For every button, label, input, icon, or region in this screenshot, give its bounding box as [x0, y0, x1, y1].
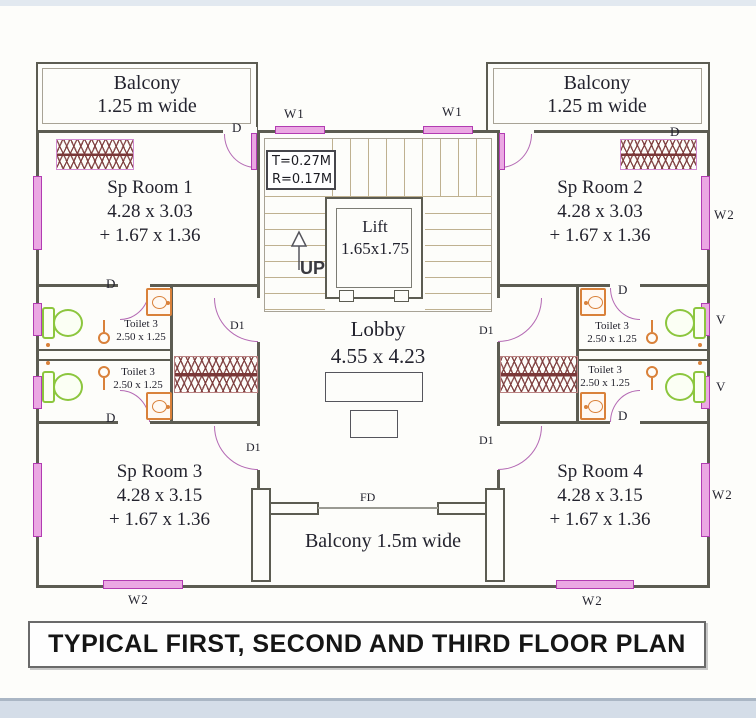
wall-segment — [576, 349, 710, 351]
lift-label: Lift 1.65x1.75 — [330, 216, 420, 260]
lift-door-notch — [394, 290, 409, 302]
door-opening — [500, 127, 534, 134]
shower-icon — [651, 378, 653, 390]
door-label-d1: D1 — [479, 323, 494, 338]
room-size: 4.28 x 3.03 — [60, 200, 240, 224]
balcony-bottom-label: Balcony 1.5m wide — [288, 530, 478, 553]
toilet-size: 2.50 x 1.25 — [108, 331, 174, 344]
wall-segment — [257, 470, 260, 490]
stair-treads — [425, 198, 491, 310]
toilet-wc-icon — [664, 306, 706, 340]
window-w2 — [701, 176, 710, 250]
window-label-w2: W2 — [128, 592, 149, 608]
toilet-label: Toilet 3 2.50 x 1.25 — [105, 366, 171, 392]
lobby-name: Lobby — [290, 316, 466, 343]
wall-segment — [640, 284, 710, 287]
room-size-extra: + 1.67 x 1.36 — [60, 224, 240, 248]
toilet-size: 2.50 x 1.25 — [105, 379, 171, 392]
floor-plan-page: T=0.27M R=0.17M UP Lift 1.65x1.75 — [0, 0, 756, 718]
window-w2 — [33, 176, 42, 250]
door-label-d1: D1 — [246, 440, 261, 455]
wall-segment — [576, 284, 579, 424]
wall-segment — [36, 359, 172, 361]
balcony-name: Balcony — [512, 72, 682, 95]
window-w1 — [423, 126, 473, 134]
room-label-sp-room-2: Sp Room 2 4.28 x 3.03 + 1.67 x 1.36 — [505, 176, 695, 248]
room-size: 4.28 x 3.15 — [62, 484, 257, 508]
toilet-name: Toilet 3 — [108, 318, 174, 331]
toilet-name: Toilet 3 — [105, 366, 171, 379]
balcony-name: Balcony — [62, 72, 232, 95]
door-label-d: D — [670, 124, 680, 140]
window-label-w2: W2 — [712, 487, 733, 503]
scan-edge-top — [0, 0, 756, 6]
wall-segment — [498, 284, 610, 287]
toilet-wc-icon — [42, 306, 84, 340]
lift-name: Lift — [330, 216, 420, 238]
wash-basin-icon — [146, 392, 172, 420]
shower-icon — [103, 320, 105, 332]
tap-dot — [46, 343, 50, 347]
window-w2 — [103, 580, 183, 589]
toilet-label: Toilet 3 2.50 x 1.25 — [579, 320, 645, 346]
door-label-d: D — [106, 276, 116, 292]
wash-basin-icon — [146, 288, 172, 316]
wash-basin-icon — [580, 392, 606, 420]
door-label-d: D — [618, 282, 628, 298]
tap-dot — [46, 361, 50, 365]
toilet-wc-icon — [42, 370, 84, 404]
room-size-extra: + 1.67 x 1.36 — [62, 508, 257, 532]
wardrobe-hatch — [174, 356, 258, 393]
balcony-top-left-label: Balcony 1.25 m wide — [62, 72, 232, 118]
window-w2 — [33, 463, 42, 537]
door-leaf — [499, 133, 505, 170]
shower-icon — [646, 366, 658, 378]
room-size-extra: + 1.67 x 1.36 — [505, 224, 695, 248]
toilet-size: 2.50 x 1.25 — [579, 333, 645, 346]
toilet-name: Toilet 3 — [572, 364, 638, 377]
balcony-width: 1.25 m wide — [62, 95, 232, 118]
room-size: 4.28 x 3.03 — [505, 200, 695, 224]
room-label-sp-room-3: Sp Room 3 4.28 x 3.15 + 1.67 x 1.36 — [62, 460, 257, 532]
window-label-w2: W2 — [582, 593, 603, 609]
door-label-d1: D1 — [479, 433, 494, 448]
lobby-furniture — [325, 372, 423, 402]
wardrobe-hatch — [620, 139, 697, 170]
shower-icon — [646, 332, 658, 344]
wall-segment — [497, 470, 500, 490]
lobby-label: Lobby 4.55 x 4.23 — [290, 316, 466, 370]
tread-dimension: T=0.27M — [272, 153, 334, 171]
up-direction-label: UP — [300, 258, 325, 279]
toilet-label: Toilet 3 2.50 x 1.25 — [572, 364, 638, 390]
lobby-size: 4.55 x 4.23 — [290, 343, 466, 370]
vent-window — [33, 376, 42, 409]
tap-dot — [698, 343, 702, 347]
lobby-furniture — [350, 410, 398, 438]
scan-edge-bottom — [0, 701, 756, 718]
shower-icon — [651, 320, 653, 332]
balcony-pillar — [485, 488, 505, 582]
wall-segment — [498, 421, 610, 424]
wall-segment — [576, 359, 710, 361]
room-name: Sp Room 2 — [505, 176, 695, 200]
window-label-w1: W1 — [442, 104, 463, 120]
riser-dimension: R=0.17M — [272, 171, 334, 189]
vent-label-v: V — [716, 379, 726, 395]
window-w1 — [275, 126, 325, 134]
window-label-w1: W1 — [284, 106, 305, 122]
toilet-label: Toilet 3 2.50 x 1.25 — [108, 318, 174, 344]
room-label-sp-room-1: Sp Room 1 4.28 x 3.03 + 1.67 x 1.36 — [60, 176, 240, 248]
room-name: Sp Room 3 — [62, 460, 257, 484]
balcony-width: 1.25 m wide — [512, 95, 682, 118]
stair-treads — [332, 139, 492, 196]
balcony-wall-stub — [269, 502, 319, 515]
vent-window — [33, 303, 42, 336]
toilet-wc-icon — [664, 370, 706, 404]
vent-label-v: V — [716, 312, 726, 328]
balcony-wall-stub — [437, 502, 487, 515]
window-w2 — [701, 463, 710, 537]
toilet-name: Toilet 3 — [579, 320, 645, 333]
stair-dimension-note: T=0.27M R=0.17M — [266, 150, 336, 190]
window-label-w2: W2 — [714, 207, 735, 223]
door-label-d: D — [232, 120, 242, 136]
balcony-top-right-label: Balcony 1.25 m wide — [512, 72, 682, 118]
wall-segment — [150, 284, 260, 287]
plan-title: TYPICAL FIRST, SECOND AND THIRD FLOOR PL… — [28, 621, 706, 668]
wall-segment — [36, 349, 172, 351]
door-leaf — [251, 133, 257, 170]
door-label-d: D — [618, 408, 628, 424]
wardrobe-hatch — [500, 356, 578, 393]
window-w2 — [556, 580, 634, 589]
room-size-extra: + 1.67 x 1.36 — [505, 508, 695, 532]
door-label-d: D — [106, 410, 116, 426]
wall-segment — [257, 130, 260, 298]
tap-dot — [698, 361, 702, 365]
toilet-size: 2.50 x 1.25 — [572, 377, 638, 390]
wall-segment — [640, 421, 710, 424]
wall-segment — [150, 421, 260, 424]
wardrobe-hatch — [56, 139, 134, 170]
door-label-fd: FD — [360, 490, 375, 505]
room-name: Sp Room 4 — [505, 460, 695, 484]
room-name: Sp Room 1 — [60, 176, 240, 200]
folding-door-line — [318, 507, 438, 509]
wash-basin-icon — [580, 288, 606, 316]
door-label-d1: D1 — [230, 318, 245, 333]
room-label-sp-room-4: Sp Room 4 4.28 x 3.15 + 1.67 x 1.36 — [505, 460, 695, 532]
room-size: 4.28 x 3.15 — [505, 484, 695, 508]
lift-size: 1.65x1.75 — [330, 238, 420, 260]
lift-door-notch — [339, 290, 354, 302]
